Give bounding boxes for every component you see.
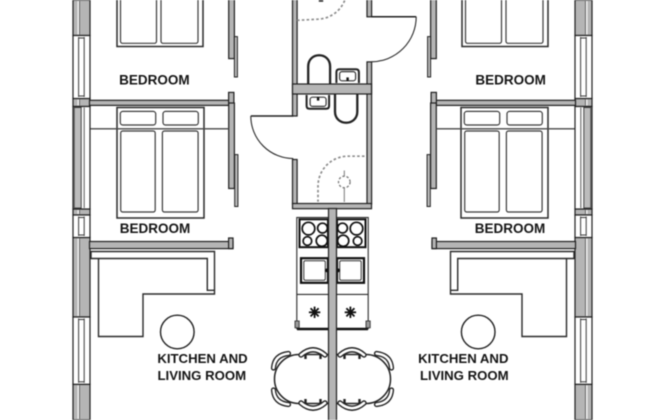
svg-text:BEDROOM: BEDROOM [119, 73, 190, 88]
svg-text:KITCHEN AND: KITCHEN AND [418, 351, 508, 366]
svg-text:KITCHEN AND: KITCHEN AND [157, 351, 247, 366]
svg-text:BEDROOM: BEDROOM [475, 221, 546, 236]
svg-text:LIVING ROOM: LIVING ROOM [420, 368, 509, 383]
svg-text:LIVING ROOM: LIVING ROOM [157, 368, 246, 383]
svg-text:BEDROOM: BEDROOM [475, 73, 546, 88]
svg-text:BEDROOM: BEDROOM [120, 221, 191, 236]
